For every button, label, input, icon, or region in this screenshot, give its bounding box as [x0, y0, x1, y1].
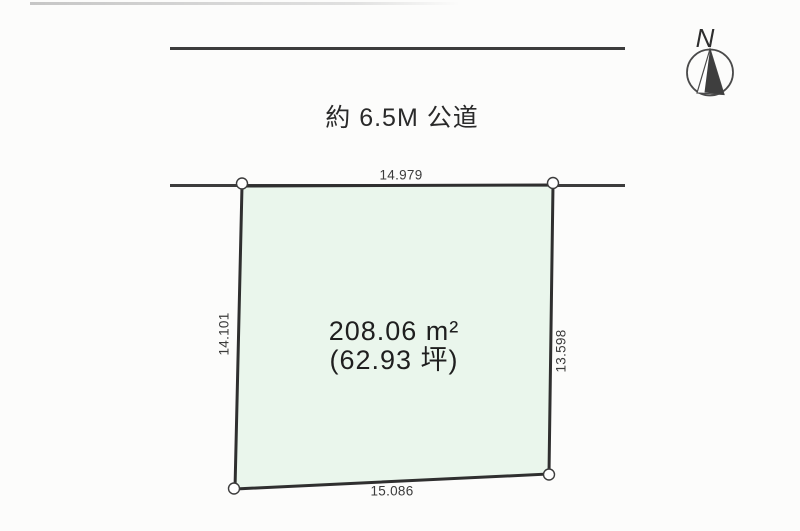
road-label: 約 6.5M 公道 [325, 98, 478, 134]
survey-point-bottom-right [544, 469, 555, 480]
parcel-area-m2: 208.06 m² [329, 317, 460, 346]
parcel-area-tsubo: (62.93 坪) [329, 346, 460, 375]
survey-point-top-right [548, 178, 559, 189]
survey-point-top-left [237, 178, 248, 189]
dimension-top: 14.979 [379, 168, 422, 183]
dimension-left: 14.101 [217, 312, 232, 355]
plot-drawing: N [0, 0, 800, 531]
dimension-right: 13.598 [554, 329, 569, 372]
compass-north-label: N [696, 23, 715, 53]
dimension-bottom: 15.086 [370, 484, 413, 499]
survey-point-bottom-left [229, 483, 240, 494]
land-plot-diagram: N 約 6.5M 公道 14.979 14.101 13.598 15.086 … [0, 0, 800, 531]
parcel-area-text: 208.06 m² (62.93 坪) [329, 317, 460, 375]
compass: N [687, 23, 733, 96]
